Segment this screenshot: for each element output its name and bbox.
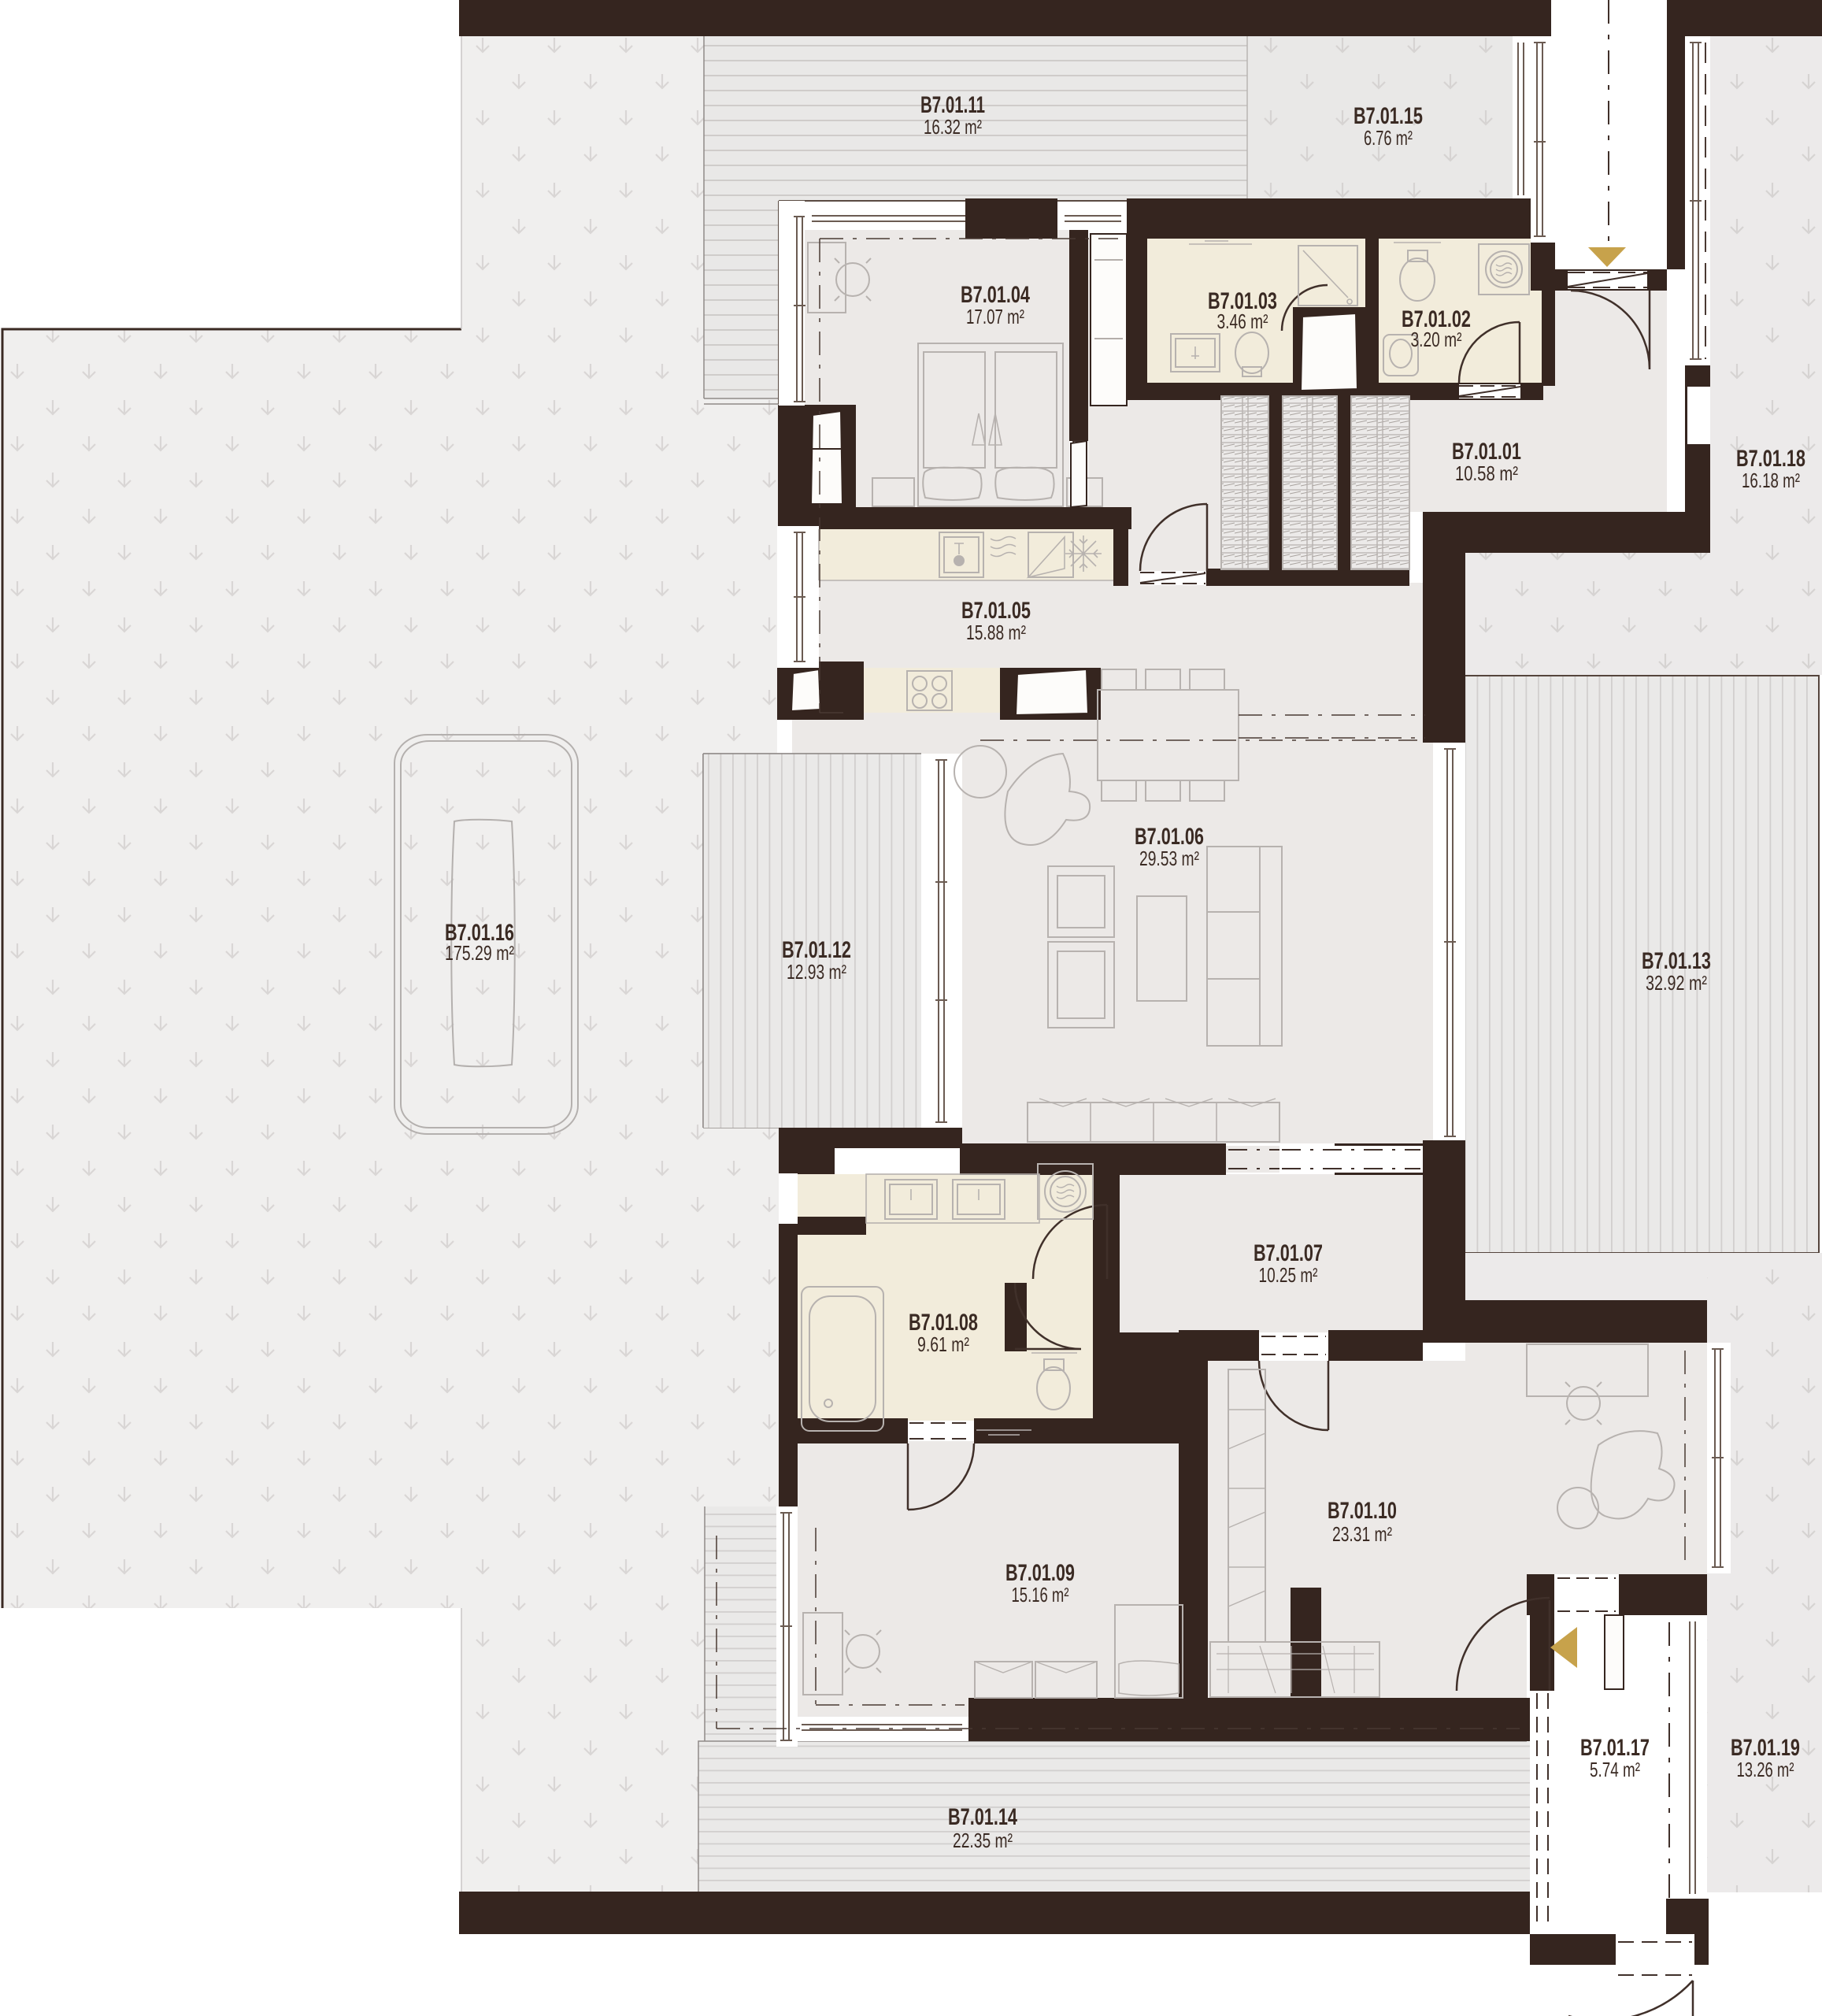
svg-text:3.46 m²: 3.46 m² xyxy=(1217,309,1268,333)
svg-text:10.58 m²: 10.58 m² xyxy=(1455,461,1518,485)
svg-text:15.16 m²: 15.16 m² xyxy=(1012,1583,1069,1606)
svg-text:29.53 m²: 29.53 m² xyxy=(1139,847,1199,870)
svg-text:12.93 m²: 12.93 m² xyxy=(787,960,846,984)
svg-text:6.76 m²: 6.76 m² xyxy=(1364,126,1413,150)
svg-text:10.25 m²: 10.25 m² xyxy=(1259,1263,1318,1287)
svg-text:15.88 m²: 15.88 m² xyxy=(966,621,1026,644)
svg-text:16.18 m²: 16.18 m² xyxy=(1742,469,1800,492)
svg-text:B7.01.10: B7.01.10 xyxy=(1328,1498,1397,1524)
svg-text:175.29 m²: 175.29 m² xyxy=(445,941,514,965)
svg-text:B7.01.14: B7.01.14 xyxy=(948,1804,1017,1830)
svg-text:5.74 m²: 5.74 m² xyxy=(1590,1758,1640,1781)
svg-text:13.26 m²: 13.26 m² xyxy=(1737,1758,1794,1781)
svg-text:23.31 m²: 23.31 m² xyxy=(1332,1522,1392,1546)
svg-text:17.07 m²: 17.07 m² xyxy=(966,305,1024,328)
svg-text:9.61 m²: 9.61 m² xyxy=(917,1332,969,1356)
svg-text:16.32 m²: 16.32 m² xyxy=(924,115,982,139)
svg-text:3.20 m²: 3.20 m² xyxy=(1411,328,1462,351)
svg-text:22.35 m²: 22.35 m² xyxy=(953,1829,1013,1852)
svg-text:32.92 m²: 32.92 m² xyxy=(1646,971,1707,995)
